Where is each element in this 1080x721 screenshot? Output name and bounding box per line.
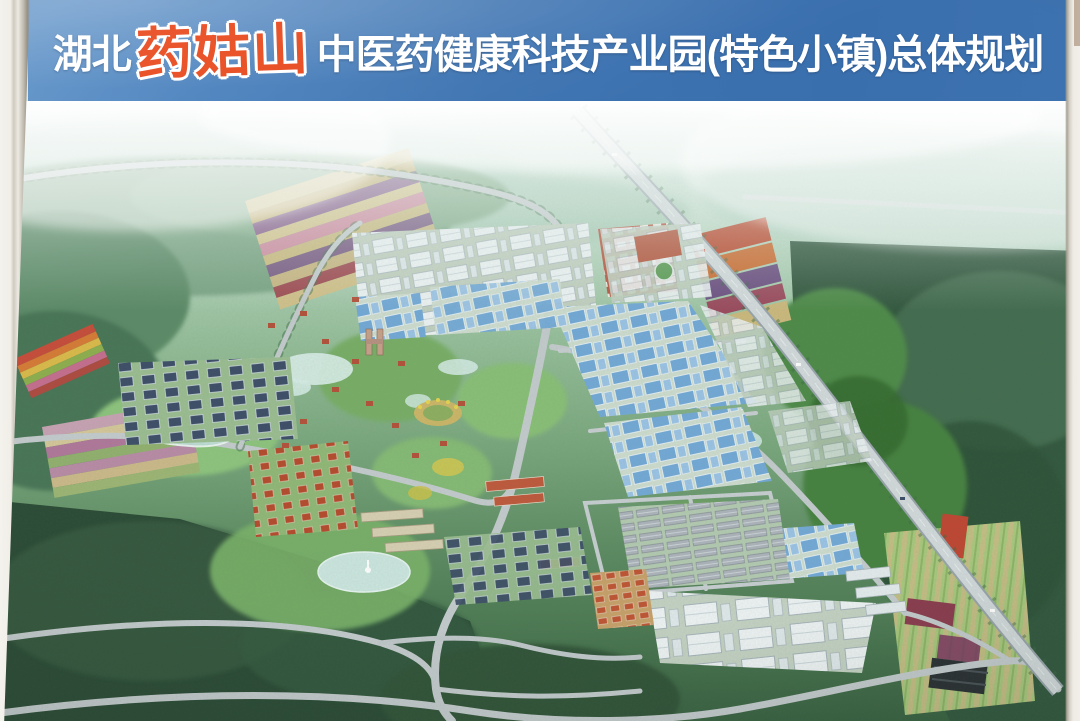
poster-title: 湖北药姑山中医药健康科技产业园(特色小镇)总体规划 [53, 7, 1044, 94]
poster-photo: 湖北药姑山中医药健康科技产业园(特色小镇)总体规划 [0, 0, 1080, 721]
title-prefix: 湖北 [53, 22, 131, 80]
title-banner: 湖北药姑山中医药健康科技产业园(特色小镇)总体规划 [28, 0, 1068, 103]
masterplan-aerial-rendering [0, 101, 1080, 721]
title-highlight-calligraphy: 药姑山 [134, 4, 311, 91]
poster-frame-right-edge [1065, 0, 1080, 721]
frame-corner-sliver [1074, 0, 1080, 46]
title-suffix: 中医药健康科技产业园(特色小镇)总体规划 [317, 22, 1044, 80]
haze-overlay [0, 101, 1080, 311]
